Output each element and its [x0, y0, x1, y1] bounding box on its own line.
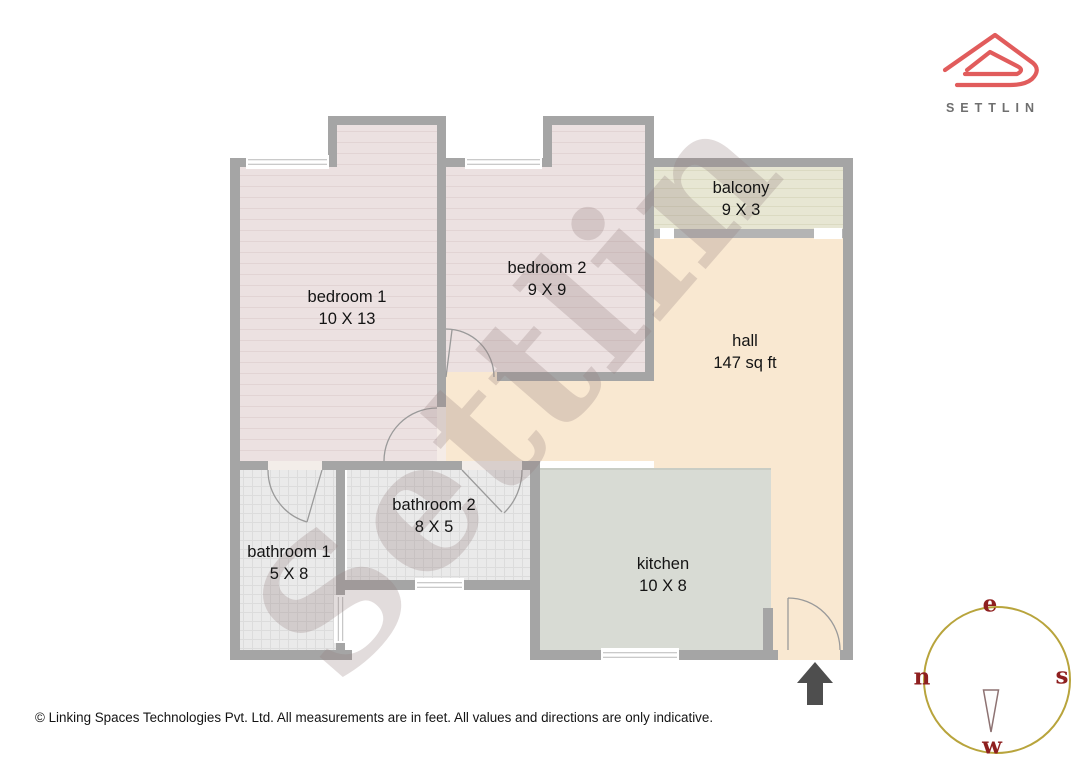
- copyright-note: © Linking Spaces Technologies Pvt. Ltd. …: [35, 710, 713, 725]
- wall: [328, 116, 446, 125]
- window: [465, 155, 542, 169]
- threshold: [446, 372, 497, 381]
- room-dims: 10 X 8: [637, 575, 689, 597]
- balcony-door-jamb: [814, 228, 842, 239]
- wall-left: [230, 158, 240, 660]
- threshold: [778, 650, 840, 660]
- bedroom2-floor: [552, 125, 645, 167]
- wall-kitchen-left: [530, 461, 540, 660]
- wall-bottom: [677, 650, 778, 660]
- wall: [645, 116, 654, 381]
- compass-letter-right: s: [1056, 663, 1069, 690]
- wall-bottom: [840, 650, 853, 660]
- wall: [336, 580, 417, 590]
- wall: [462, 580, 540, 590]
- room-dims: 9 X 9: [508, 279, 587, 301]
- brand-name: SETTLIN: [928, 101, 1052, 115]
- room-label-bathroom1: bathroom 1 5 X 8: [247, 541, 330, 585]
- compass-letter-bottom: w: [982, 733, 1002, 760]
- room-dims: 10 X 13: [308, 308, 387, 330]
- brand-logo: SETTLIN: [928, 28, 1052, 115]
- compass-letter-left: n: [914, 664, 931, 691]
- wall-bath-divider: [336, 461, 345, 597]
- room-name: bedroom 1: [308, 286, 387, 308]
- balcony-door-jamb: [660, 228, 674, 239]
- room-name: bathroom 2: [392, 494, 475, 516]
- window: [334, 595, 347, 643]
- compass: e n s w: [917, 596, 1077, 760]
- room-dims: 9 X 3: [713, 199, 770, 221]
- room-name: bedroom 2: [508, 257, 587, 279]
- window: [601, 648, 679, 662]
- wall-bottom: [530, 650, 603, 660]
- kitchen-floor-edge: [540, 468, 771, 470]
- wall-divider: [437, 116, 446, 381]
- settlin-house-icon: [938, 28, 1042, 92]
- threshold: [437, 407, 446, 461]
- compass-ring: [924, 607, 1070, 753]
- room-dims: 147 sq ft: [713, 352, 776, 374]
- compass-letter-top: e: [983, 591, 998, 618]
- bedroom1-floor: [337, 125, 437, 167]
- window: [246, 155, 329, 169]
- room-dims: 8 X 5: [392, 516, 475, 538]
- room-name: kitchen: [637, 553, 689, 575]
- wall-right: [843, 158, 853, 660]
- hall-floor: [446, 381, 654, 461]
- room-label-bedroom1: bedroom 1 10 X 13: [308, 286, 387, 330]
- room-dims: 5 X 8: [247, 563, 330, 585]
- room-label-balcony: balcony 9 X 3: [713, 177, 770, 221]
- entrance-arrow-icon: [797, 662, 833, 705]
- wall-stub: [763, 608, 773, 650]
- wall: [230, 461, 268, 470]
- wall: [543, 116, 654, 125]
- wall-divider: [437, 381, 446, 407]
- floorplan-page: Settlin bedroom 1 10 X 13 bedroom 2 9 X …: [0, 0, 1080, 764]
- compass-needle-icon: [984, 690, 999, 732]
- room-name: balcony: [713, 177, 770, 199]
- wall-balcony-top: [645, 158, 853, 167]
- threshold: [462, 461, 522, 470]
- room-label-kitchen: kitchen 10 X 8: [637, 553, 689, 597]
- room-name: hall: [713, 330, 776, 352]
- room-name: bathroom 1: [247, 541, 330, 563]
- wall: [497, 372, 654, 381]
- room-label-hall: hall 147 sq ft: [713, 330, 776, 374]
- room-label-bedroom2: bedroom 2 9 X 9: [508, 257, 587, 301]
- wall-bottom: [230, 650, 352, 660]
- room-label-bathroom2: bathroom 2 8 X 5: [392, 494, 475, 538]
- window: [415, 578, 464, 592]
- threshold: [268, 461, 322, 470]
